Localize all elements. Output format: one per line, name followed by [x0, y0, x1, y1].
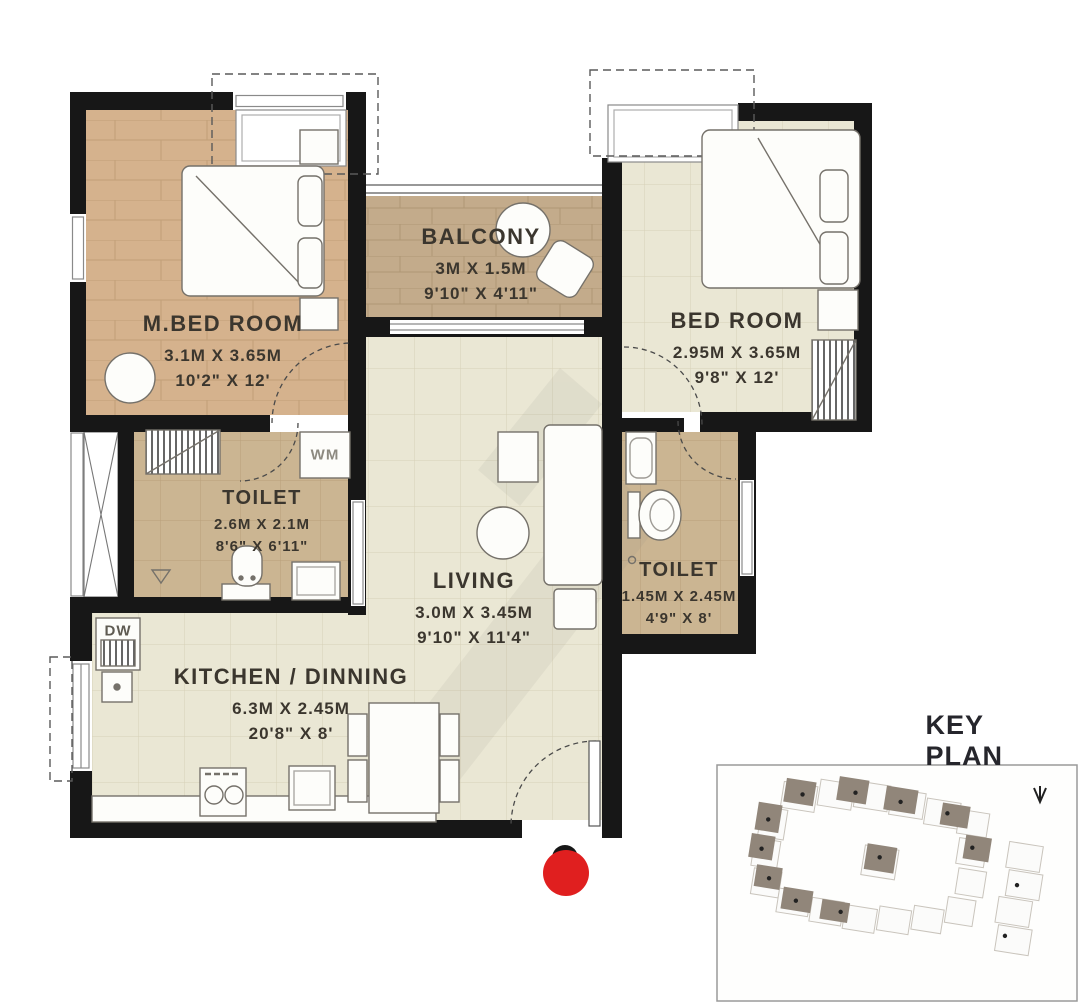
room-name: M.BED ROOM: [143, 311, 303, 337]
mbedroom-top-window: [233, 92, 346, 110]
room-dim-ft: 4'9" X 8': [622, 610, 737, 627]
bedroom-label: BED ROOM 2.95M X 3.65M 9'8" X 12': [671, 308, 804, 388]
shower-tray: [292, 562, 340, 600]
kitchen-label: KITCHEN / DINNING 6.3M X 2.45M 20'8" X 8…: [174, 664, 409, 744]
wc-dot: [251, 576, 255, 580]
dishwasher-hatch: [101, 640, 135, 666]
entrance-door-leaf: [589, 741, 600, 826]
wc-dot: [239, 576, 243, 580]
nightstand: [818, 290, 858, 330]
floor-plan-page: M.BED ROOM 3.1M X 3.65M 10'2" X 12' BALC…: [0, 0, 1080, 1002]
balcony-railing: [366, 185, 602, 193]
dining-chair: [348, 760, 367, 802]
room-dim-m: 2.6M X 2.1M: [214, 516, 310, 533]
toilet1-label: TOILET 2.6M X 2.1M 8'6" X 6'11": [214, 487, 310, 555]
room-dim-ft: 10'2" X 12': [143, 371, 303, 391]
marker-red-dot: [543, 850, 589, 896]
dining-chair: [440, 760, 459, 802]
room-dim-m: 1.45M X 2.45M: [622, 588, 737, 605]
washing-machine-label: WM: [311, 447, 340, 464]
room-dim-m: 2.95M X 3.65M: [671, 343, 804, 363]
mbedroom-left-window: [70, 214, 86, 282]
room-dim-m: 3.0M X 3.45M: [415, 603, 533, 623]
mbedroom-label: M.BED ROOM 3.1M X 3.65M 10'2" X 12': [143, 311, 303, 391]
room-dim-ft: 8'6" X 6'11": [214, 538, 310, 555]
toilet2-window: [740, 480, 754, 576]
room-dim-ft: 9'10" X 11'4": [415, 628, 533, 648]
nightstand: [300, 298, 338, 330]
balcony-label: BALCONY 3M X 1.5M 9'10" X 4'11": [421, 224, 540, 304]
room-dim-ft: 9'10" X 4'11": [421, 284, 540, 304]
kitchen-projection: [50, 657, 72, 781]
room-name: TOILET: [214, 487, 310, 510]
balcony-living-window: [390, 320, 584, 334]
room-name: LIVING: [415, 568, 533, 594]
room-name: BALCONY: [421, 224, 540, 250]
dining-chair: [440, 714, 459, 756]
room-dim-ft: 20'8" X 8': [174, 724, 409, 744]
pillow: [820, 170, 848, 222]
key-plan-title: KEY PLAN: [926, 710, 1029, 772]
room-dim-m: 3.1M X 3.65M: [143, 346, 303, 366]
dishwasher-label: DW: [105, 623, 132, 640]
side-table: [498, 432, 538, 482]
floor-plan-drawing: [0, 0, 1080, 1002]
room-dim-ft: 9'8" X 12': [671, 368, 804, 388]
service-shaft: [71, 432, 118, 597]
nightstand: [300, 130, 338, 164]
entrance-marker: [543, 845, 589, 896]
sofa: [544, 425, 602, 585]
pillow: [298, 238, 322, 288]
kitchen-left-window: [70, 661, 92, 771]
room-name: BED ROOM: [671, 308, 804, 334]
pillow: [820, 232, 848, 284]
toilet2-label: TOILET 1.45M X 2.45M 4'9" X 8': [622, 559, 737, 627]
room-name: TOILET: [622, 559, 737, 582]
wc-tank: [628, 492, 640, 538]
pillow: [298, 176, 322, 226]
room-dim-m: 6.3M X 2.45M: [174, 699, 409, 719]
room-dim-m: 3M X 1.5M: [421, 259, 540, 279]
unit-knob: [114, 684, 120, 690]
living-label: LIVING 3.0M X 3.45M 9'10" X 11'4": [415, 568, 533, 648]
coffee-table: [477, 507, 529, 559]
key-plan: [717, 764, 1077, 1001]
ottoman: [554, 589, 596, 629]
toilet1-window: [351, 500, 365, 606]
kitchen-sink: [289, 766, 335, 810]
room-name: KITCHEN / DINNING: [174, 664, 409, 690]
